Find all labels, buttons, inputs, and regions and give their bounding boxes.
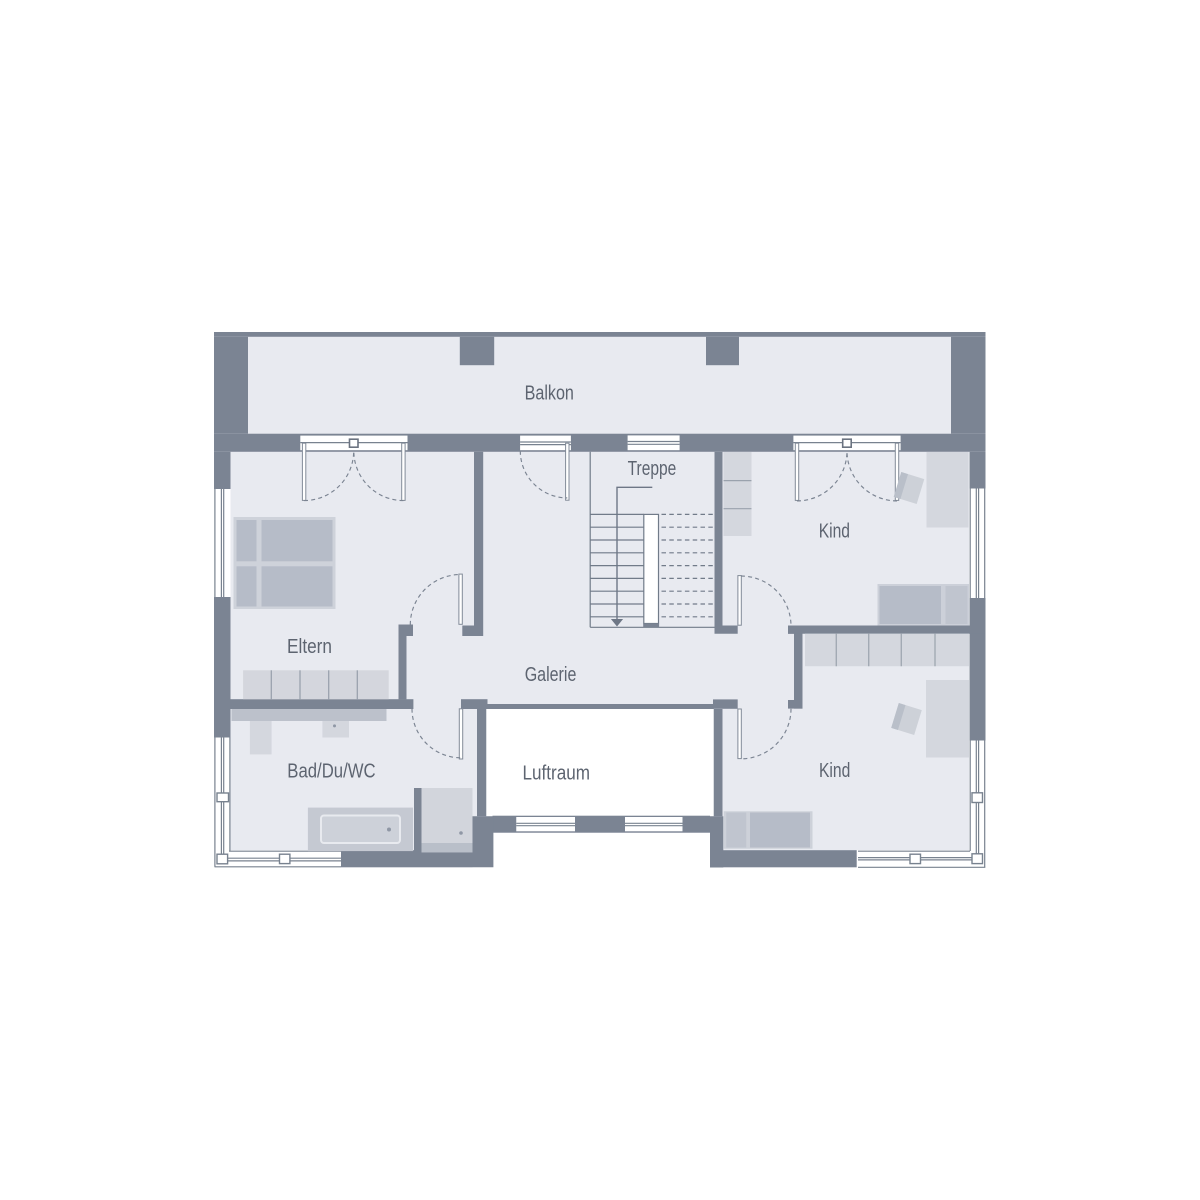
svg-text:Treppe: Treppe: [628, 457, 677, 480]
svg-text:Luftraum: Luftraum: [523, 762, 591, 785]
svg-text:Bad/Du/WC: Bad/Du/WC: [287, 760, 375, 783]
svg-text:Galerie: Galerie: [525, 663, 577, 686]
svg-text:Eltern: Eltern: [287, 635, 332, 658]
svg-text:Balkon: Balkon: [525, 382, 574, 405]
svg-text:Kind: Kind: [819, 519, 850, 542]
svg-text:Kind: Kind: [819, 759, 850, 782]
